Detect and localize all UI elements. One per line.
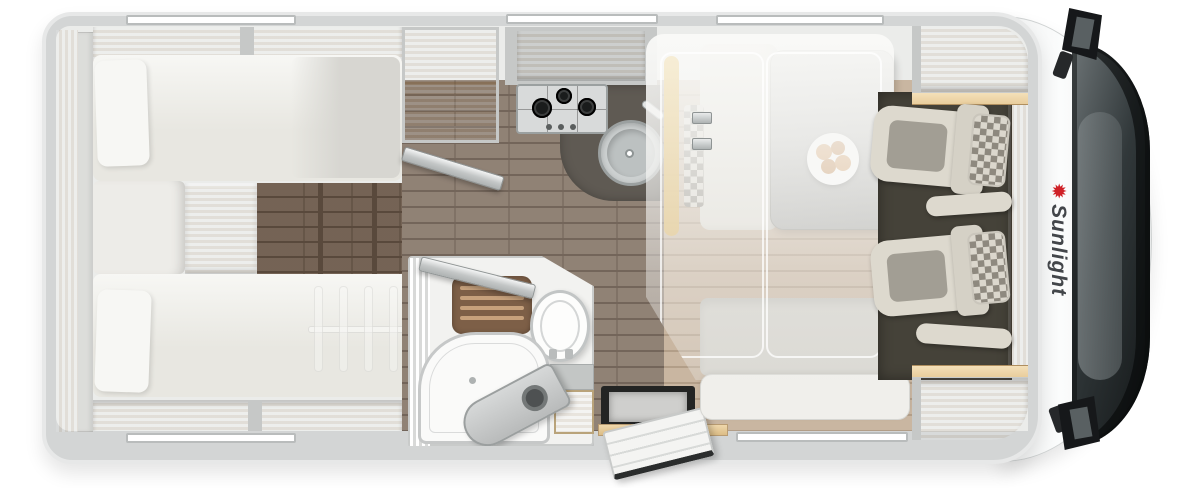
cab-seat-passenger (868, 220, 1012, 325)
duckboard-slat (460, 316, 524, 320)
ladder-rung (389, 286, 398, 372)
dashboard-reflection (1078, 112, 1122, 380)
cabinet-divider (912, 26, 921, 92)
mirror-glass (1072, 17, 1095, 50)
ladder-rung (314, 286, 323, 372)
brand-text: Sunlight (1046, 204, 1070, 296)
drop-bed-mattress-seam (766, 52, 882, 358)
wall-window-top-rear (126, 15, 296, 25)
motorhome-floorplan-top-view: ✹Sunlight (0, 0, 1200, 488)
toilet-lid (540, 300, 580, 352)
sink-drain (625, 149, 634, 158)
mirror-glass (1070, 407, 1093, 440)
duckboard-slat (460, 296, 524, 300)
cab-trim-shelf-bottom (912, 365, 1028, 378)
nightstand-between-beds (93, 181, 185, 274)
bed-headboard-panel (78, 32, 93, 432)
seat-headrest-checkered (967, 230, 1011, 305)
toilet-hinge (549, 349, 557, 359)
single-bed-top (93, 55, 402, 181)
pillow (94, 289, 152, 393)
cabinet-divider (912, 378, 921, 440)
gas-stove (516, 84, 608, 134)
aisle-plank-seam (372, 183, 377, 276)
kitchen-tall-cabinet (402, 27, 499, 143)
wall-window-top-kitchen (506, 14, 658, 24)
dashboard-trim (1008, 105, 1028, 365)
rear-wardrobe-panel (56, 30, 78, 432)
bed-blanket (291, 57, 400, 178)
pillow (94, 59, 150, 167)
table-bracket (692, 138, 712, 150)
aisle-plank-seam (318, 183, 323, 276)
table-bracket (692, 112, 712, 124)
kitchen-overhead-cabinet (517, 31, 645, 81)
bed-step (185, 183, 257, 275)
cab-seat-driver (868, 94, 1012, 199)
seat-cushion-center (886, 120, 948, 173)
stove-knob (570, 124, 576, 130)
side-mirror-bottom (1058, 396, 1100, 450)
ladder-rung (364, 286, 373, 372)
bed-front-shelf-band (93, 400, 402, 431)
drop-bed-frame-edge (664, 56, 679, 236)
sun-icon: ✹ (1048, 184, 1068, 199)
shelf-divider (248, 400, 262, 431)
duckboard-slat (460, 306, 524, 310)
stove-burner (556, 88, 572, 104)
stove-knob (558, 124, 564, 130)
wall-window-bottom-dinette (736, 432, 908, 442)
shower-drain (469, 377, 476, 384)
seat-headrest-checkered (967, 113, 1011, 188)
ladder-rung (339, 286, 348, 372)
aisle-floor-between-beds (257, 183, 408, 276)
drop-down-bed-overlay (646, 34, 894, 380)
stove-knob (546, 124, 552, 130)
cabinet-shelf-line (405, 82, 496, 85)
corner-cabinet-top-right (912, 26, 1028, 92)
windshield (1072, 42, 1150, 446)
toilet-hinge (565, 349, 573, 359)
side-bench-seat (700, 374, 910, 420)
kitchen-overhead-cabinet-frame (505, 27, 657, 85)
stove-burner (578, 98, 596, 116)
wall-window-top-dinette (716, 15, 884, 25)
seat-cushion-center (886, 250, 948, 303)
stove-burner (532, 98, 552, 118)
corner-cabinet-bottom-right (912, 378, 1028, 440)
single-bed-bottom (93, 274, 410, 397)
sunlight-logo-inner: ✹Sunlight (1046, 184, 1070, 296)
wall-window-bottom-rear (126, 433, 296, 443)
bed-ladder-ghost (308, 280, 408, 380)
washbasin-bowl (517, 381, 552, 416)
